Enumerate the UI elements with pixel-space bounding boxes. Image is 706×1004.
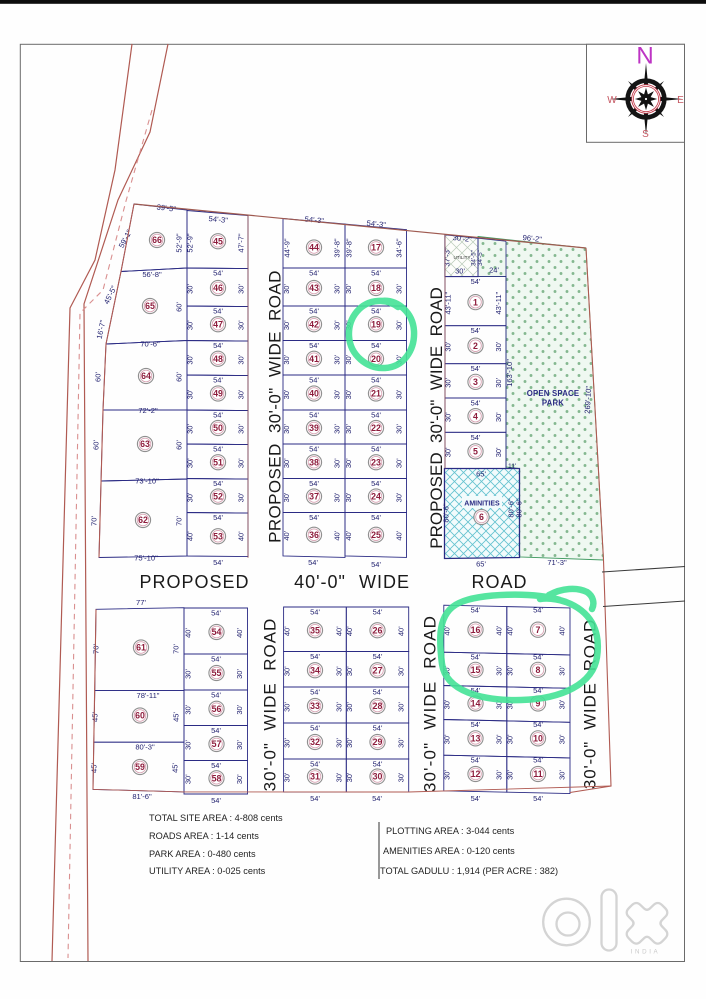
svg-text:28: 28 xyxy=(373,701,383,711)
svg-text:54': 54' xyxy=(213,513,223,522)
svg-text:57: 57 xyxy=(212,739,222,749)
svg-text:40': 40' xyxy=(344,530,353,540)
svg-text:30': 30' xyxy=(455,267,465,276)
svg-text:30': 30' xyxy=(237,320,246,330)
svg-text:30': 30' xyxy=(335,772,344,782)
svg-text:54': 54' xyxy=(471,399,481,408)
svg-text:45: 45 xyxy=(213,236,223,246)
svg-text:11: 11 xyxy=(533,769,542,779)
svg-text:30': 30' xyxy=(333,424,342,434)
svg-text:30': 30' xyxy=(558,734,567,744)
svg-text:30': 30' xyxy=(283,738,292,748)
svg-text:61: 61 xyxy=(136,643,146,653)
svg-text:54': 54' xyxy=(310,608,320,617)
svg-text:ROADS AREA : 1-14 cents: ROADS AREA : 1-14 cents xyxy=(149,831,259,841)
svg-text:E: E xyxy=(677,95,684,106)
svg-text:30': 30' xyxy=(397,666,406,676)
svg-text:30': 30' xyxy=(186,492,195,502)
svg-text:54': 54' xyxy=(309,341,319,350)
svg-text:44'-9": 44'-9" xyxy=(283,238,292,257)
svg-text:52: 52 xyxy=(213,492,223,502)
svg-text:40': 40' xyxy=(395,530,404,540)
svg-text:50: 50 xyxy=(213,423,223,433)
svg-text:30': 30' xyxy=(395,320,404,330)
svg-text:70'-6": 70'-6" xyxy=(140,340,160,349)
svg-text:33: 33 xyxy=(310,701,320,711)
svg-text:46: 46 xyxy=(213,283,223,293)
svg-text:54': 54' xyxy=(371,341,381,350)
svg-text:40': 40' xyxy=(345,626,354,636)
svg-text:41: 41 xyxy=(309,354,319,364)
svg-text:54': 54' xyxy=(213,445,223,454)
svg-text:12: 12 xyxy=(471,769,481,779)
svg-text:30': 30' xyxy=(237,424,246,434)
svg-text:30': 30' xyxy=(335,702,344,712)
svg-text:30': 30' xyxy=(282,284,291,294)
svg-text:30'-0" WIDE ROAD: 30'-0" WIDE ROAD xyxy=(421,615,440,792)
svg-text:45': 45' xyxy=(171,763,180,773)
svg-text:72'-2": 72'-2" xyxy=(138,406,158,415)
svg-text:54': 54' xyxy=(471,606,481,615)
svg-text:54': 54' xyxy=(371,411,381,420)
svg-text:34'-5": 34'-5" xyxy=(477,250,484,266)
svg-text:30': 30' xyxy=(335,738,344,748)
svg-text:34'-6": 34'-6" xyxy=(395,238,404,257)
svg-text:34: 34 xyxy=(310,665,320,675)
svg-text:54': 54' xyxy=(211,609,221,618)
svg-text:45': 45' xyxy=(172,712,181,722)
svg-text:30': 30' xyxy=(237,389,246,399)
svg-text:40': 40' xyxy=(282,530,291,540)
svg-text:63: 63 xyxy=(140,439,150,449)
svg-text:5: 5 xyxy=(473,447,478,457)
svg-text:47: 47 xyxy=(213,319,223,329)
svg-text:30': 30' xyxy=(235,704,244,714)
svg-text:65': 65' xyxy=(476,470,486,479)
svg-text:AMENITIES AREA : 0-120 cents: AMENITIES AREA : 0-120 cents xyxy=(383,846,515,856)
svg-text:54': 54' xyxy=(371,445,381,454)
svg-text:60': 60' xyxy=(175,372,184,382)
svg-text:81'-6": 81'-6" xyxy=(132,792,152,801)
svg-text:54': 54' xyxy=(211,726,221,735)
svg-text:24': 24' xyxy=(489,266,499,275)
svg-text:54': 54' xyxy=(533,653,543,662)
svg-text:54': 54' xyxy=(533,606,543,615)
svg-text:30': 30' xyxy=(333,458,342,468)
svg-text:54': 54' xyxy=(309,269,319,278)
svg-text:30': 30' xyxy=(186,320,195,330)
svg-text:54': 54' xyxy=(309,411,319,420)
svg-text:54': 54' xyxy=(211,761,221,770)
svg-text:30': 30' xyxy=(344,424,353,434)
svg-text:24: 24 xyxy=(371,492,381,502)
svg-text:40': 40' xyxy=(186,531,195,541)
svg-text:6: 6 xyxy=(479,512,484,522)
svg-text:30': 30' xyxy=(395,389,404,399)
svg-text:PARK: PARK xyxy=(542,399,564,408)
svg-text:30': 30' xyxy=(282,492,291,502)
svg-text:54': 54' xyxy=(371,479,381,488)
svg-text:65': 65' xyxy=(476,560,486,569)
svg-text:269'-10": 269'-10" xyxy=(583,385,593,414)
svg-text:54': 54' xyxy=(373,760,383,769)
svg-text:54': 54' xyxy=(308,558,318,567)
svg-text:40': 40' xyxy=(237,531,246,541)
svg-text:8: 8 xyxy=(536,665,541,675)
svg-text:52'-9": 52'-9" xyxy=(175,233,184,252)
svg-text:30': 30' xyxy=(237,354,246,364)
svg-text:39'-8": 39'-8" xyxy=(345,238,354,257)
svg-text:38: 38 xyxy=(309,457,319,467)
svg-text:29: 29 xyxy=(373,737,383,747)
svg-text:1: 1 xyxy=(473,297,478,307)
svg-text:54': 54' xyxy=(371,513,381,522)
svg-text:54': 54' xyxy=(373,608,383,617)
svg-text:UTILITY: UTILITY xyxy=(453,255,470,260)
svg-text:30': 30' xyxy=(283,702,292,712)
svg-text:23: 23 xyxy=(371,457,381,467)
svg-text:21: 21 xyxy=(371,389,381,399)
svg-text:40: 40 xyxy=(309,389,319,399)
svg-text:77': 77' xyxy=(136,598,146,607)
svg-text:54': 54' xyxy=(471,720,481,729)
svg-text:30': 30' xyxy=(443,770,452,780)
svg-text:54': 54' xyxy=(371,376,381,385)
svg-text:70': 70' xyxy=(90,516,99,526)
svg-text:32: 32 xyxy=(310,737,320,747)
svg-text:30': 30' xyxy=(184,669,193,679)
svg-text:45': 45' xyxy=(90,763,99,773)
svg-text:30': 30' xyxy=(344,492,353,502)
svg-text:40': 40' xyxy=(506,625,515,635)
svg-text:30': 30' xyxy=(494,412,503,422)
svg-text:30': 30' xyxy=(344,284,353,294)
svg-text:30': 30' xyxy=(558,770,567,780)
svg-text:19: 19 xyxy=(371,319,381,329)
svg-text:30': 30' xyxy=(397,738,406,748)
svg-text:56: 56 xyxy=(212,704,222,714)
svg-text:54': 54' xyxy=(213,341,223,350)
svg-text:30': 30' xyxy=(184,740,193,750)
svg-text:54': 54' xyxy=(373,724,383,733)
svg-text:80'-6": 80'-6" xyxy=(515,498,524,517)
svg-text:30': 30' xyxy=(235,774,244,784)
svg-text:54': 54' xyxy=(213,307,223,316)
svg-text:54': 54' xyxy=(211,691,221,700)
svg-text:30': 30' xyxy=(186,424,195,434)
svg-text:W: W xyxy=(607,95,617,106)
svg-text:47'-7": 47'-7" xyxy=(237,233,246,252)
svg-text:54': 54' xyxy=(533,720,543,729)
svg-text:30: 30 xyxy=(373,772,383,782)
svg-text:54': 54' xyxy=(371,269,381,278)
svg-text:30': 30' xyxy=(397,772,406,782)
svg-text:30': 30' xyxy=(186,284,195,294)
svg-text:49: 49 xyxy=(213,389,223,399)
svg-text:N: N xyxy=(636,43,653,70)
svg-text:S: S xyxy=(642,129,649,140)
svg-text:30': 30' xyxy=(345,738,354,748)
svg-text:70': 70' xyxy=(172,644,181,654)
svg-text:73'-10": 73'-10" xyxy=(135,477,159,486)
svg-text:54': 54' xyxy=(310,724,320,733)
svg-text:40': 40' xyxy=(335,626,344,636)
svg-text:54': 54' xyxy=(310,688,320,697)
svg-text:54': 54' xyxy=(533,686,543,695)
svg-text:48: 48 xyxy=(213,354,223,364)
svg-text:30': 30' xyxy=(443,734,452,744)
svg-text:62: 62 xyxy=(138,515,148,525)
svg-text:30': 30' xyxy=(443,699,452,709)
svg-text:27: 27 xyxy=(373,665,383,675)
svg-text:30': 30' xyxy=(237,458,246,468)
svg-text:30': 30' xyxy=(333,354,342,364)
svg-text:UTILITY AREA : 0-025 cents: UTILITY AREA : 0-025 cents xyxy=(149,866,266,876)
svg-text:30': 30' xyxy=(395,458,404,468)
svg-text:40'-0": 40'-0" xyxy=(294,572,346,592)
svg-text:30': 30' xyxy=(333,389,342,399)
svg-text:40': 40' xyxy=(235,628,244,638)
svg-text:39'-8": 39'-8" xyxy=(333,238,342,257)
svg-text:20: 20 xyxy=(371,354,381,364)
svg-text:30': 30' xyxy=(186,389,195,399)
svg-text:WIDE: WIDE xyxy=(359,572,410,592)
svg-text:30': 30' xyxy=(282,354,291,364)
svg-text:54: 54 xyxy=(212,627,222,637)
svg-text:30': 30' xyxy=(395,284,404,294)
svg-text:80'-3": 80'-3" xyxy=(135,743,155,752)
svg-text:TOTAL GADULU : 1,914 (PER ACRE: TOTAL GADULU : 1,914 (PER ACRE : 382) xyxy=(380,866,558,876)
svg-text:30': 30' xyxy=(494,341,503,351)
svg-text:INDIA: INDIA xyxy=(631,949,661,956)
svg-text:30': 30' xyxy=(184,704,193,714)
svg-text:54': 54' xyxy=(471,277,481,286)
svg-text:30': 30' xyxy=(558,699,567,709)
svg-text:37'-3": 37'-3" xyxy=(443,247,452,266)
svg-text:30': 30' xyxy=(345,702,354,712)
svg-text:45': 45' xyxy=(91,712,100,722)
svg-text:54': 54' xyxy=(309,445,319,454)
svg-text:64: 64 xyxy=(141,371,151,381)
svg-text:58: 58 xyxy=(212,773,222,783)
svg-text:22: 22 xyxy=(371,423,381,433)
svg-text:30': 30' xyxy=(345,772,354,782)
svg-text:30': 30' xyxy=(395,424,404,434)
svg-text:30': 30' xyxy=(495,770,504,780)
svg-text:54': 54' xyxy=(372,794,382,803)
svg-text:40': 40' xyxy=(495,625,504,635)
svg-text:59: 59 xyxy=(135,762,145,772)
svg-text:30': 30' xyxy=(283,666,292,676)
svg-text:30': 30' xyxy=(344,389,353,399)
svg-text:78'-11": 78'-11" xyxy=(136,691,159,700)
svg-text:66: 66 xyxy=(152,235,162,245)
svg-text:60': 60' xyxy=(175,440,184,450)
svg-text:43: 43 xyxy=(309,283,319,293)
svg-text:31: 31 xyxy=(310,772,320,782)
svg-text:54': 54' xyxy=(310,652,320,661)
svg-text:54': 54' xyxy=(211,655,221,664)
svg-text:30': 30' xyxy=(237,492,246,502)
svg-text:30': 30' xyxy=(283,772,292,782)
svg-text:54': 54' xyxy=(471,653,481,662)
svg-text:30': 30' xyxy=(282,389,291,399)
svg-text:40': 40' xyxy=(397,626,406,636)
svg-text:30': 30' xyxy=(186,458,195,468)
svg-text:54': 54' xyxy=(213,269,223,278)
svg-text:3: 3 xyxy=(473,377,478,387)
svg-text:30': 30' xyxy=(282,424,291,434)
svg-text:35: 35 xyxy=(310,625,320,635)
svg-text:13: 13 xyxy=(471,734,481,744)
svg-text:30': 30' xyxy=(495,734,504,744)
svg-text:54': 54' xyxy=(213,376,223,385)
svg-text:30': 30' xyxy=(333,320,342,330)
svg-text:54': 54' xyxy=(309,479,319,488)
svg-text:70': 70' xyxy=(92,644,101,654)
svg-text:14: 14 xyxy=(471,699,481,709)
svg-text:70': 70' xyxy=(175,516,184,526)
svg-text:AMINITIES: AMINITIES xyxy=(464,501,500,508)
svg-text:54': 54' xyxy=(213,558,223,567)
svg-text:44: 44 xyxy=(309,243,319,253)
svg-text:54': 54' xyxy=(533,794,543,803)
svg-text:40': 40' xyxy=(184,628,193,638)
svg-text:30': 30' xyxy=(282,458,291,468)
svg-text:37: 37 xyxy=(309,492,319,502)
svg-text:54': 54' xyxy=(471,364,481,373)
svg-text:51: 51 xyxy=(213,457,223,467)
svg-text:56'-8": 56'-8" xyxy=(142,270,162,279)
svg-text:30': 30' xyxy=(333,492,342,502)
svg-text:7: 7 xyxy=(536,625,541,635)
svg-text:15: 15 xyxy=(471,665,481,675)
svg-text:16: 16 xyxy=(471,625,481,635)
svg-text:4: 4 xyxy=(473,411,478,421)
svg-text:30': 30' xyxy=(495,665,504,675)
svg-text:42: 42 xyxy=(309,319,319,329)
svg-text:54': 54' xyxy=(471,326,481,335)
svg-text:30': 30' xyxy=(344,458,353,468)
svg-text:OPEN SPACE: OPEN SPACE xyxy=(527,389,580,398)
svg-text:54': 54' xyxy=(211,796,221,805)
svg-text:30': 30' xyxy=(494,447,503,457)
svg-text:30': 30' xyxy=(186,354,195,364)
svg-text:54': 54' xyxy=(310,794,320,803)
svg-text:30': 30' xyxy=(506,770,515,780)
svg-text:54': 54' xyxy=(213,411,223,420)
svg-text:60': 60' xyxy=(94,372,103,382)
svg-text:30': 30' xyxy=(395,492,404,502)
svg-text:54': 54' xyxy=(373,652,383,661)
svg-text:60: 60 xyxy=(135,711,145,721)
svg-text:30': 30' xyxy=(345,666,354,676)
svg-text:75'-10": 75'-10" xyxy=(134,554,158,563)
svg-text:54': 54' xyxy=(533,756,543,765)
svg-text:43'-11": 43'-11" xyxy=(494,291,503,314)
svg-text:TOTAL SITE AREA : 4-808 cents: TOTAL SITE AREA : 4-808 cents xyxy=(149,813,283,823)
svg-text:54': 54' xyxy=(371,560,381,569)
svg-text:30': 30' xyxy=(506,734,515,744)
svg-text:40': 40' xyxy=(283,626,292,636)
svg-text:PLOTTING AREA : 3-044 cents: PLOTTING AREA : 3-044 cents xyxy=(386,826,515,836)
svg-text:54': 54' xyxy=(309,307,319,316)
svg-text:30'-0" WIDE ROAD: 30'-0" WIDE ROAD xyxy=(261,618,280,792)
svg-text:53: 53 xyxy=(213,531,223,541)
svg-text:54': 54' xyxy=(310,760,320,769)
svg-text:30': 30' xyxy=(282,320,291,330)
svg-text:30': 30' xyxy=(344,354,353,364)
svg-text:39: 39 xyxy=(309,423,319,433)
svg-text:25: 25 xyxy=(371,530,381,540)
svg-text:54': 54' xyxy=(471,756,481,765)
svg-text:30': 30' xyxy=(235,669,244,679)
svg-text:30': 30' xyxy=(335,666,344,676)
svg-text:54': 54' xyxy=(373,688,383,697)
svg-text:54': 54' xyxy=(471,794,481,803)
svg-text:30': 30' xyxy=(558,665,567,675)
svg-text:54': 54' xyxy=(309,376,319,385)
svg-text:11': 11' xyxy=(508,463,516,470)
svg-text:60': 60' xyxy=(175,302,184,312)
svg-text:2: 2 xyxy=(473,341,478,351)
svg-text:PARK AREA : 0-480 cents: PARK AREA : 0-480 cents xyxy=(149,849,256,859)
svg-text:40': 40' xyxy=(333,530,342,540)
svg-text:30': 30' xyxy=(506,665,515,675)
svg-text:PROPOSED: PROPOSED xyxy=(139,572,249,592)
svg-text:30': 30' xyxy=(397,702,406,712)
svg-text:52'-9": 52'-9" xyxy=(186,233,195,252)
svg-text:55: 55 xyxy=(212,668,222,678)
svg-text:30': 30' xyxy=(494,377,503,387)
svg-text:30': 30' xyxy=(237,284,246,294)
svg-text:30': 30' xyxy=(333,284,342,294)
svg-text:54': 54' xyxy=(371,307,381,316)
svg-text:30': 30' xyxy=(184,774,193,784)
svg-text:ROAD: ROAD xyxy=(471,572,527,592)
svg-text:36: 36 xyxy=(309,530,319,540)
svg-text:54': 54' xyxy=(471,433,481,442)
svg-text:54': 54' xyxy=(213,479,223,488)
svg-text:30': 30' xyxy=(235,740,244,750)
svg-text:65: 65 xyxy=(145,301,155,311)
svg-text:60': 60' xyxy=(92,440,101,450)
svg-text:54': 54' xyxy=(309,513,319,522)
svg-text:18: 18 xyxy=(371,283,381,293)
svg-text:40': 40' xyxy=(558,625,567,635)
svg-text:17: 17 xyxy=(371,243,381,253)
svg-text:10: 10 xyxy=(533,734,543,744)
svg-text:71'-3": 71'-3" xyxy=(547,558,567,567)
svg-text:26: 26 xyxy=(373,625,383,635)
